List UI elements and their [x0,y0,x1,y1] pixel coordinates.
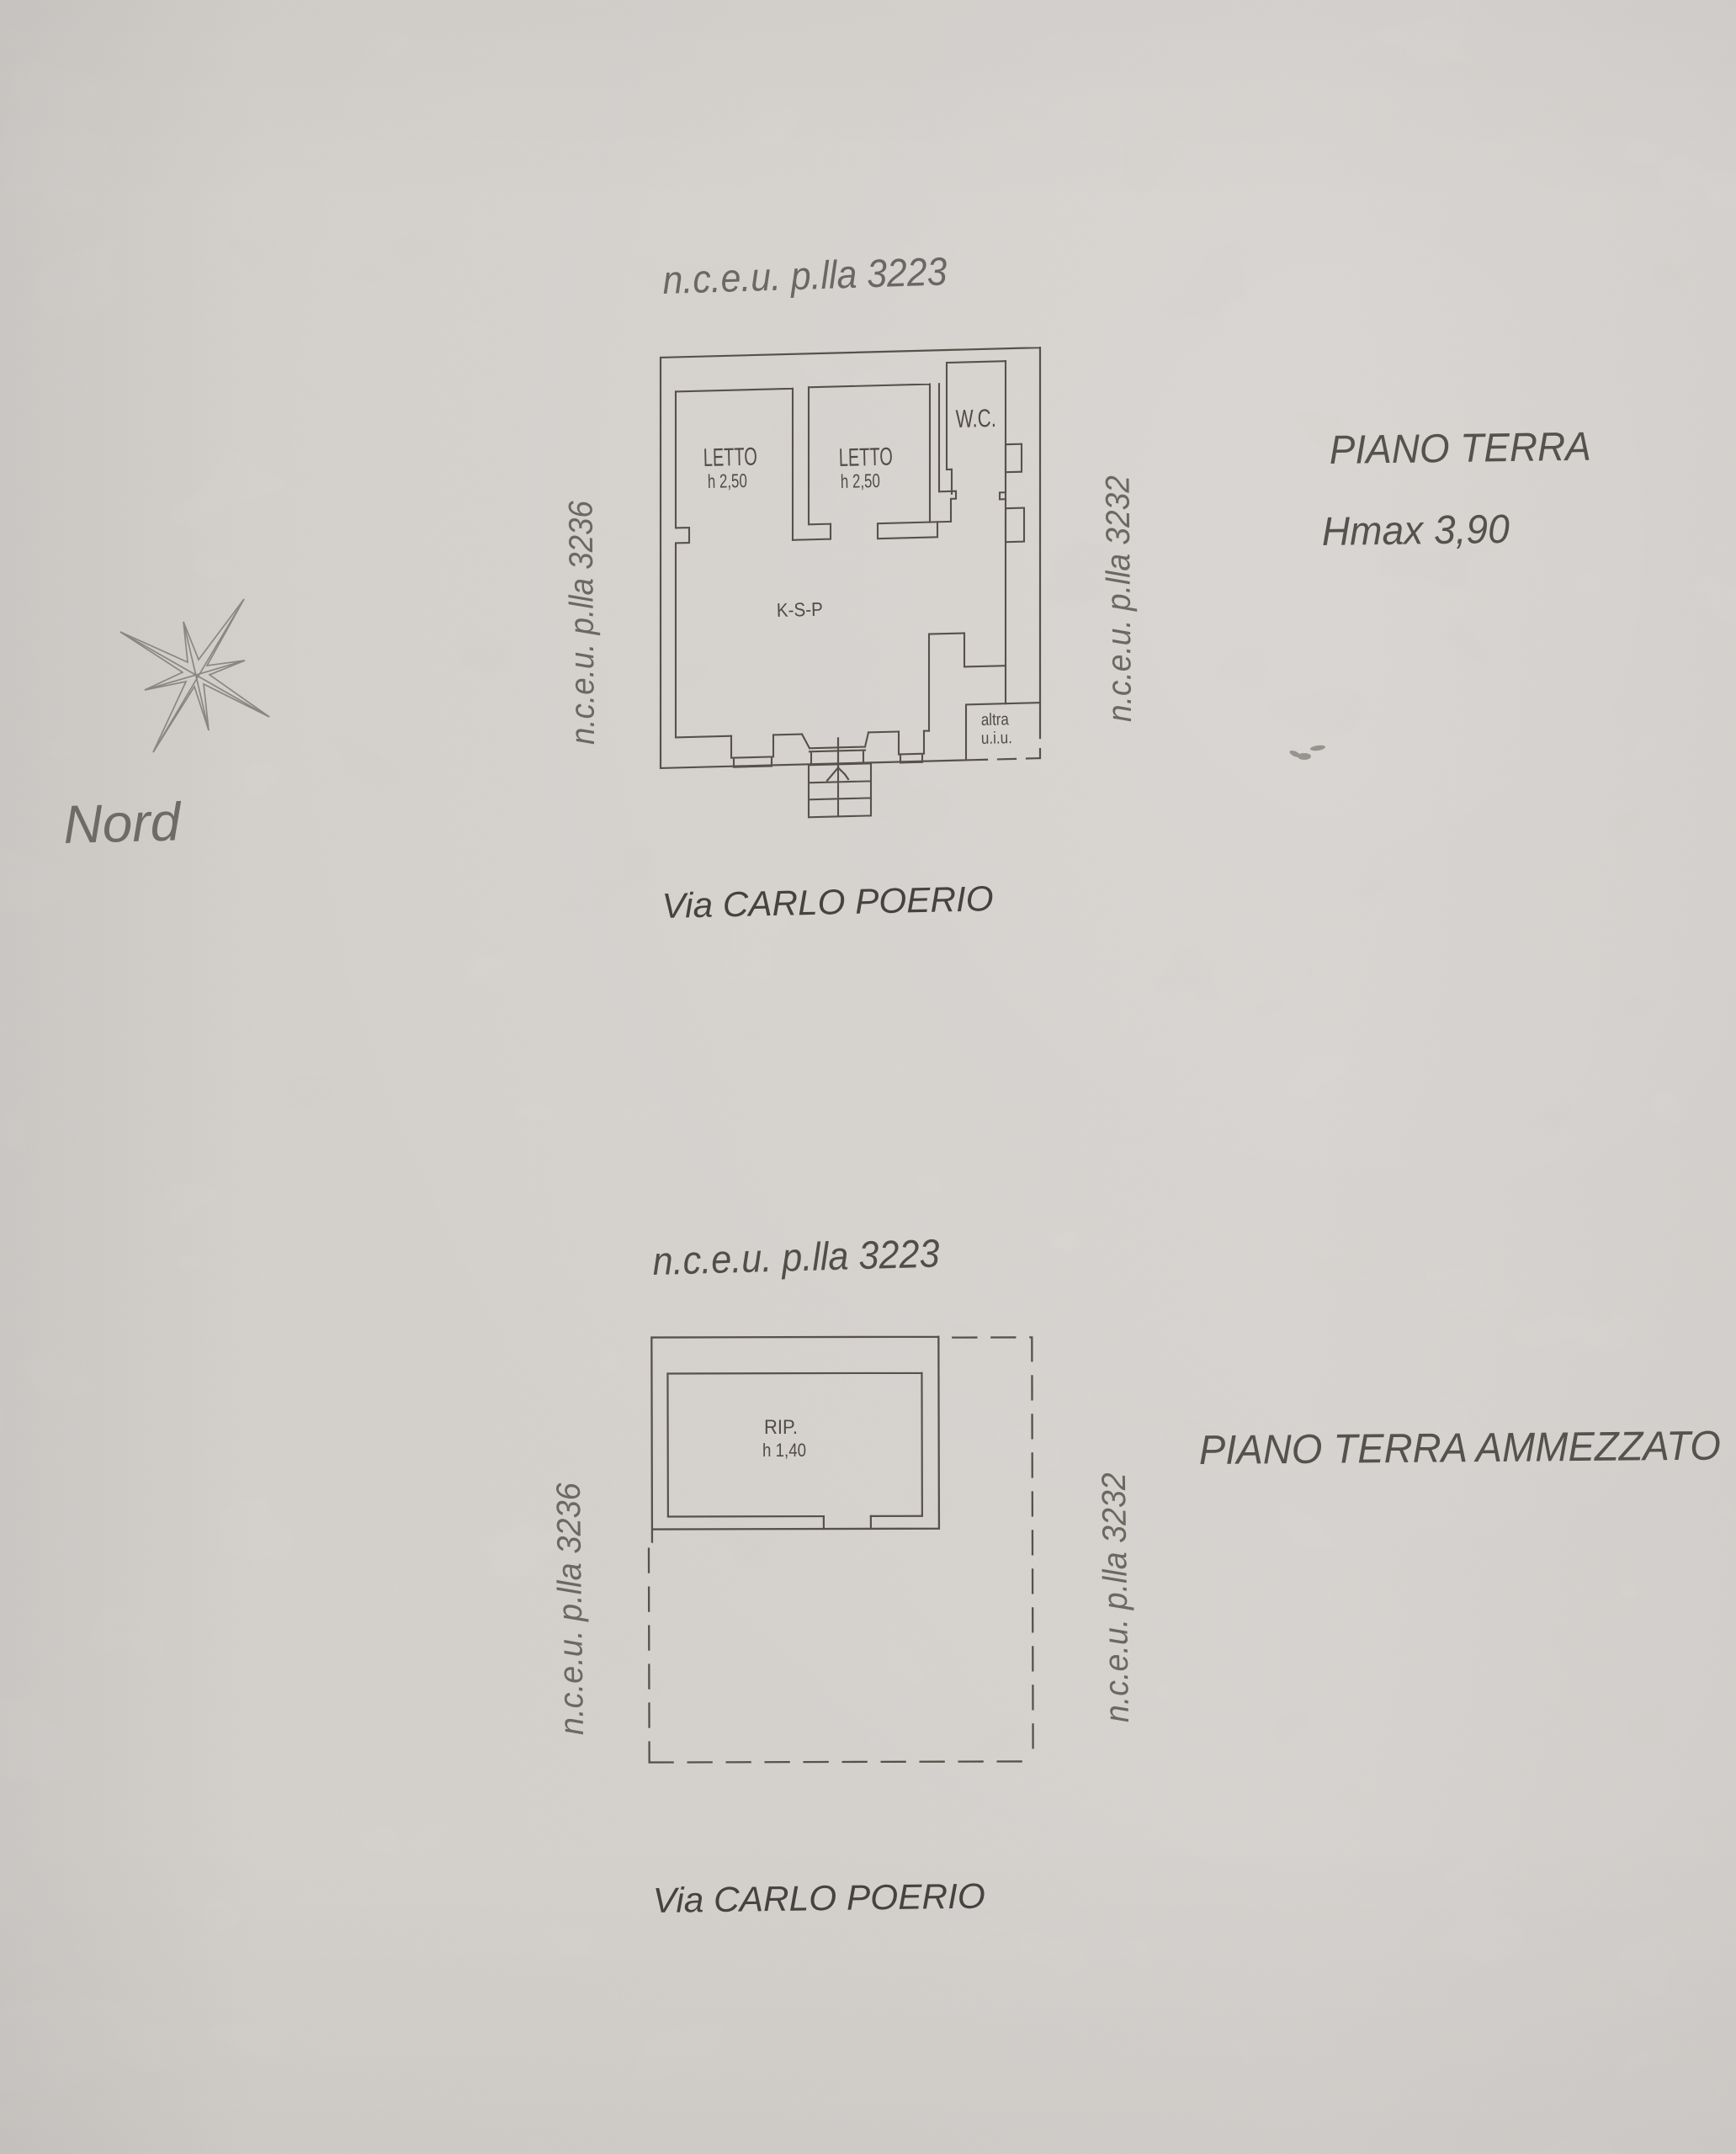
svg-text:u.i.u.: u.i.u. [981,729,1012,748]
svg-text:n.c.e.u. p.lla 3236: n.c.e.u. p.lla 3236 [562,500,602,745]
svg-text:W.C.: W.C. [955,405,996,433]
svg-text:n.c.e.u. p.lla 3223: n.c.e.u. p.lla 3223 [652,1230,940,1283]
svg-text:n.c.e.u. p.lla 3232: n.c.e.u. p.lla 3232 [1096,1472,1136,1723]
svg-text:h 1,40: h 1,40 [762,1440,806,1461]
svg-text:PIANO TERRA AMMEZZATO: PIANO TERRA AMMEZZATO [1199,1424,1721,1473]
svg-text:Via CARLO POERIO: Via CARLO POERIO [652,1875,985,1920]
svg-text:Via CARLO POERIO: Via CARLO POERIO [661,878,994,926]
svg-text:K-S-P: K-S-P [777,598,824,621]
svg-text:LETTO: LETTO [838,443,893,472]
svg-text:RIP.: RIP. [764,1416,798,1439]
svg-text:n.c.e.u. p.lla 3232: n.c.e.u. p.lla 3232 [1099,475,1139,722]
svg-text:h 2,50: h 2,50 [841,470,881,492]
svg-text:PIANO TERRA: PIANO TERRA [1329,425,1591,473]
svg-text:n.c.e.u. p.lla 3236: n.c.e.u. p.lla 3236 [550,1482,591,1735]
svg-text:altra: altra [981,710,1010,729]
svg-text:Hmax 3,90: Hmax 3,90 [1321,507,1510,554]
svg-text:h 2,50: h 2,50 [708,470,748,492]
svg-text:n.c.e.u. p.lla 3223: n.c.e.u. p.lla 3223 [662,248,948,302]
svg-text:Nord: Nord [62,791,183,855]
svg-text:LETTO: LETTO [703,443,757,472]
